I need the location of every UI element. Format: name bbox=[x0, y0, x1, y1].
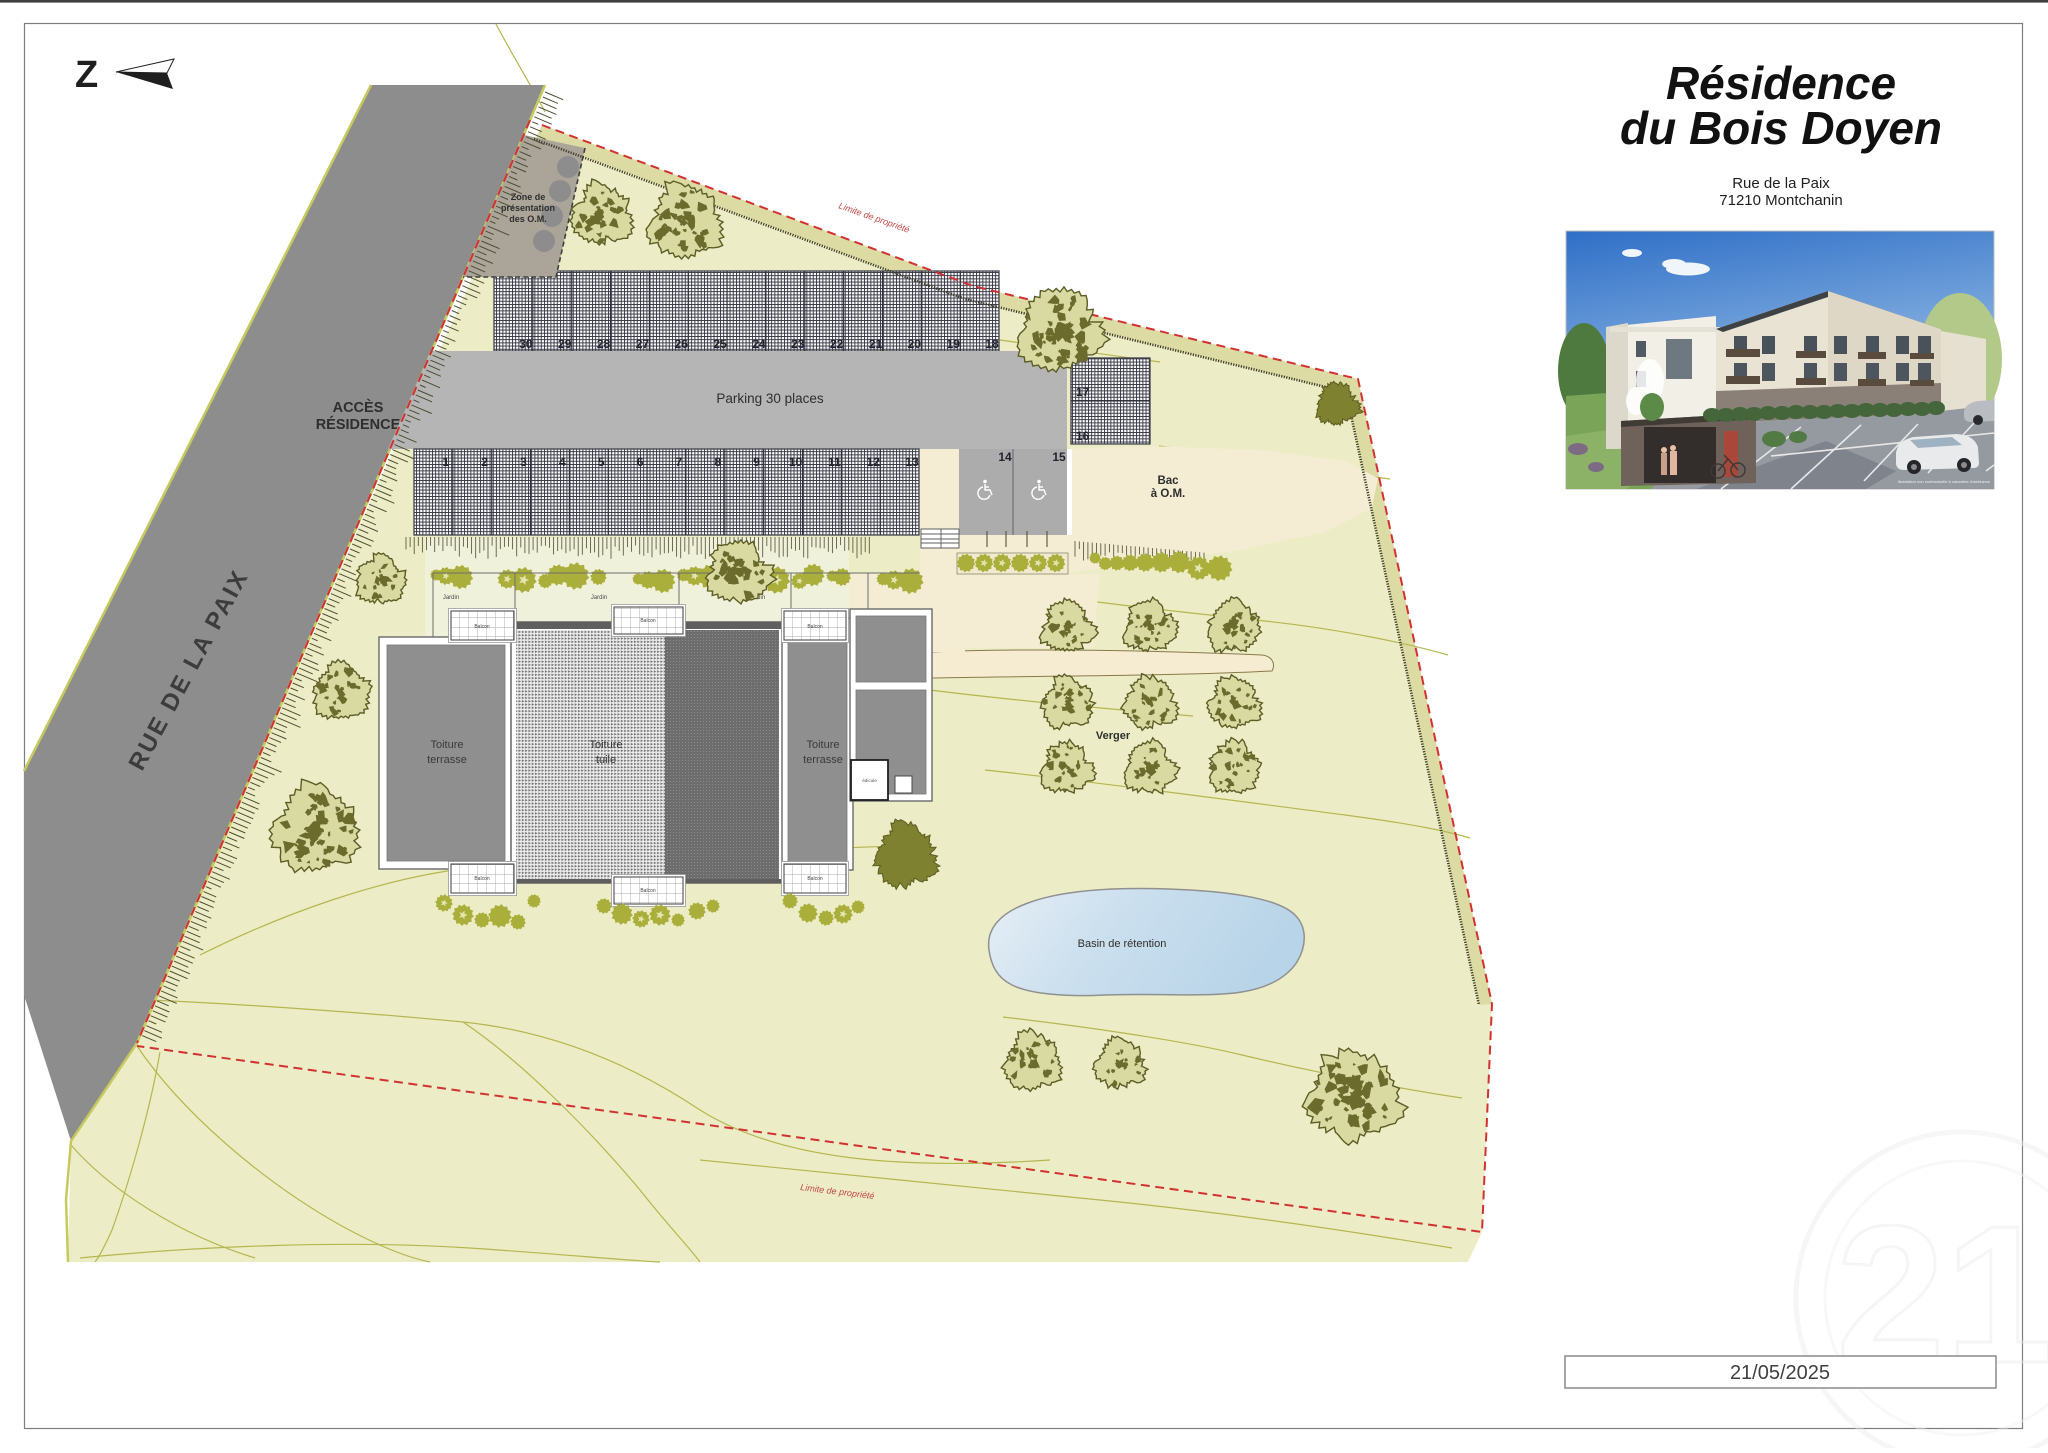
svg-text:19: 19 bbox=[947, 337, 961, 351]
svg-text:21: 21 bbox=[869, 337, 883, 351]
svg-text:terrasse: terrasse bbox=[803, 754, 843, 766]
svg-text:Illustration non contractuelle: Illustration non contractuelle à caractè… bbox=[1898, 479, 1991, 484]
svg-text:1: 1 bbox=[442, 455, 449, 469]
svg-text:Toiture: Toiture bbox=[589, 739, 622, 751]
svg-text:Balcon: Balcon bbox=[807, 876, 823, 882]
svg-text:édicule: édicule bbox=[862, 778, 877, 783]
svg-text:25: 25 bbox=[713, 337, 727, 351]
svg-text:Balcon: Balcon bbox=[640, 888, 656, 894]
svg-text:2: 2 bbox=[481, 455, 488, 469]
svg-text:24: 24 bbox=[752, 337, 766, 351]
svg-text:Jardin: Jardin bbox=[591, 595, 607, 601]
svg-text:30: 30 bbox=[519, 337, 533, 351]
svg-text:3: 3 bbox=[520, 455, 527, 469]
svg-text:18: 18 bbox=[985, 337, 999, 351]
svg-text:12: 12 bbox=[867, 455, 881, 469]
svg-text:Basin de rétention: Basin de rétention bbox=[1078, 938, 1167, 950]
svg-text:14: 14 bbox=[998, 450, 1012, 464]
svg-text:28: 28 bbox=[597, 337, 611, 351]
svg-text:Verger: Verger bbox=[1096, 730, 1131, 742]
svg-text:Z: Z bbox=[75, 54, 98, 96]
svg-text:tuile: tuile bbox=[596, 754, 616, 766]
svg-text:Toiture: Toiture bbox=[430, 739, 463, 751]
svg-text:9: 9 bbox=[753, 455, 760, 469]
svg-text:27: 27 bbox=[636, 337, 650, 351]
svg-text:Parking 30 places: Parking 30 places bbox=[716, 391, 824, 406]
svg-text:8: 8 bbox=[714, 455, 721, 469]
svg-text:à O.M.: à O.M. bbox=[1151, 488, 1186, 500]
svg-text:Balcon: Balcon bbox=[474, 876, 490, 882]
svg-text:du Bois Doyen: du Bois Doyen bbox=[1620, 102, 1942, 154]
svg-text:des O.M.: des O.M. bbox=[509, 214, 547, 224]
svg-text:16: 16 bbox=[1076, 429, 1090, 443]
svg-text:terrasse: terrasse bbox=[427, 754, 467, 766]
svg-text:Jardin: Jardin bbox=[443, 595, 459, 601]
svg-text:29: 29 bbox=[558, 337, 572, 351]
svg-text:Toiture: Toiture bbox=[806, 739, 839, 751]
svg-text:RÉSIDENCE: RÉSIDENCE bbox=[316, 416, 401, 433]
svg-text:20: 20 bbox=[908, 337, 922, 351]
svg-text:11: 11 bbox=[828, 455, 841, 469]
svg-text:17: 17 bbox=[1076, 385, 1090, 399]
svg-text:ACCÈS: ACCÈS bbox=[333, 399, 384, 416]
svg-text:23: 23 bbox=[791, 337, 805, 351]
svg-text:Balcon: Balcon bbox=[640, 618, 656, 624]
svg-text:présentation: présentation bbox=[501, 203, 555, 213]
svg-text:21/05/2025: 21/05/2025 bbox=[1730, 1362, 1830, 1384]
svg-text:Bac: Bac bbox=[1157, 475, 1179, 487]
svg-text:4: 4 bbox=[559, 455, 566, 469]
svg-text:71210 Montchanin: 71210 Montchanin bbox=[1719, 192, 1842, 209]
svg-text:26: 26 bbox=[675, 337, 689, 351]
svg-text:7: 7 bbox=[676, 455, 683, 469]
svg-text:10: 10 bbox=[789, 455, 803, 469]
svg-text:13: 13 bbox=[905, 455, 919, 469]
svg-text:5: 5 bbox=[598, 455, 605, 469]
svg-text:6: 6 bbox=[637, 455, 644, 469]
svg-text:15: 15 bbox=[1052, 450, 1066, 464]
svg-text:Balcon: Balcon bbox=[474, 624, 490, 630]
svg-text:Rue de la Paix: Rue de la Paix bbox=[1732, 175, 1830, 192]
svg-text:22: 22 bbox=[830, 337, 844, 351]
svg-text:Balcon: Balcon bbox=[807, 624, 823, 630]
